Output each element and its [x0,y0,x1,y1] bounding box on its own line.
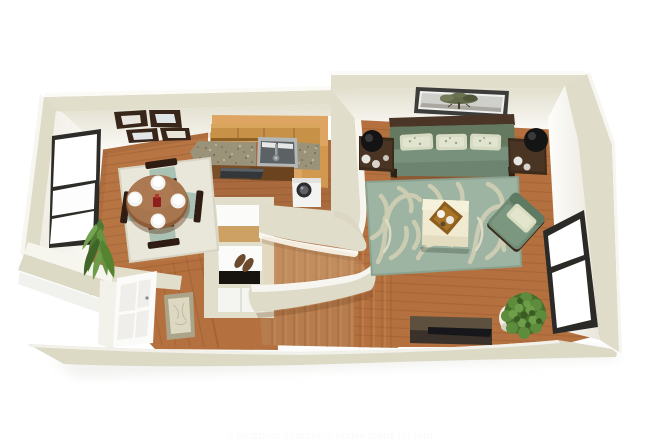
svg-text:3 bedroom apartment house plan: 3 bedroom apartment house plans for rent [227,430,432,440]
